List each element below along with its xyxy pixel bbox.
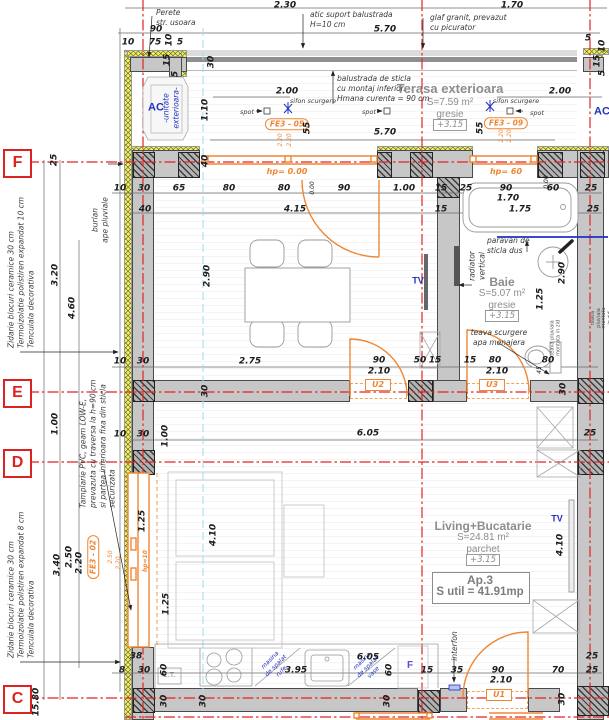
note-sifon-left: sifon scurgere	[290, 97, 336, 105]
note-burlan: burlan ape pluviale	[90, 197, 110, 243]
note-interfon: interfon	[450, 631, 460, 660]
kitchen-counter	[155, 644, 438, 688]
grid-marker-d: D	[3, 449, 32, 478]
note-glaf: glaf granit, prevazut cu picurator	[430, 13, 507, 33]
note-sifon-right: sifon scurgere	[493, 97, 539, 105]
note-atic: atic suport balustrada H=10 cm	[310, 10, 393, 30]
note-zidarie-8: Zidarie blocuri ceramice 30 cm Termoizol…	[6, 488, 35, 658]
note-balustrada: balustrada de sticla cu montaj inferior.…	[337, 74, 430, 103]
grid-marker-c: C	[3, 685, 32, 714]
floor-plan-canvas: F E D C Perete str. usoara atic suport b…	[0, 0, 609, 720]
door-label-u1: U1	[486, 689, 512, 701]
ac-sublabel: -unitate exterioara-	[161, 87, 181, 128]
window-label-fe3-09: FE3 - 09	[484, 117, 528, 129]
note-teava-pluviala: teava pluviala montata in zid	[591, 307, 609, 328]
note-perete: Perete str. usoara	[156, 8, 196, 28]
window-label-fe3-02: FE3 - 02	[87, 535, 99, 579]
window-label-fe3-05: FE3 - 05	[265, 118, 309, 130]
interfon-unit	[449, 685, 460, 690]
grid-marker-e: E	[3, 379, 32, 408]
tv-label-living: TV	[551, 515, 563, 524]
tv-label-dining: TV	[412, 277, 424, 286]
door-label-u2: U2	[365, 379, 391, 391]
note-ct-label: C.T.	[163, 671, 176, 680]
note-radiator: radiator vertical	[467, 251, 487, 281]
note-paravan: paravan de sticla dus	[487, 236, 530, 256]
note-spot: spot	[362, 108, 376, 116]
door-label-u3: U3	[479, 379, 505, 391]
apartment-area: S util = 41.91mp	[436, 587, 523, 599]
windows-doors	[128, 156, 543, 719]
note-spot: spot	[240, 108, 254, 116]
note-teava-scurgere: teava scurgere apa menajera	[471, 328, 528, 348]
note-spot: spot	[530, 109, 544, 117]
note-zidarie-10: Zidarie blocuri ceramice 30 cm Termoizol…	[6, 178, 35, 348]
fridge-label: F	[407, 661, 413, 671]
grid-marker-f: F	[3, 149, 32, 178]
note-tamplarie: Tamplarie PVC, geam LOW-E, prevazuta cu …	[79, 356, 118, 508]
parapet-height-label: hp=10	[143, 550, 149, 572]
parapet-height-label: hp= 60	[490, 168, 522, 176]
sofa	[168, 472, 324, 648]
ac-label-right: AC	[594, 107, 609, 118]
parapet-height-label: hp= 0.00	[267, 168, 308, 176]
note-teava-pluviala: teava pluviala montata in zid	[551, 320, 562, 356]
apartment-title: Ap.3	[467, 574, 493, 586]
